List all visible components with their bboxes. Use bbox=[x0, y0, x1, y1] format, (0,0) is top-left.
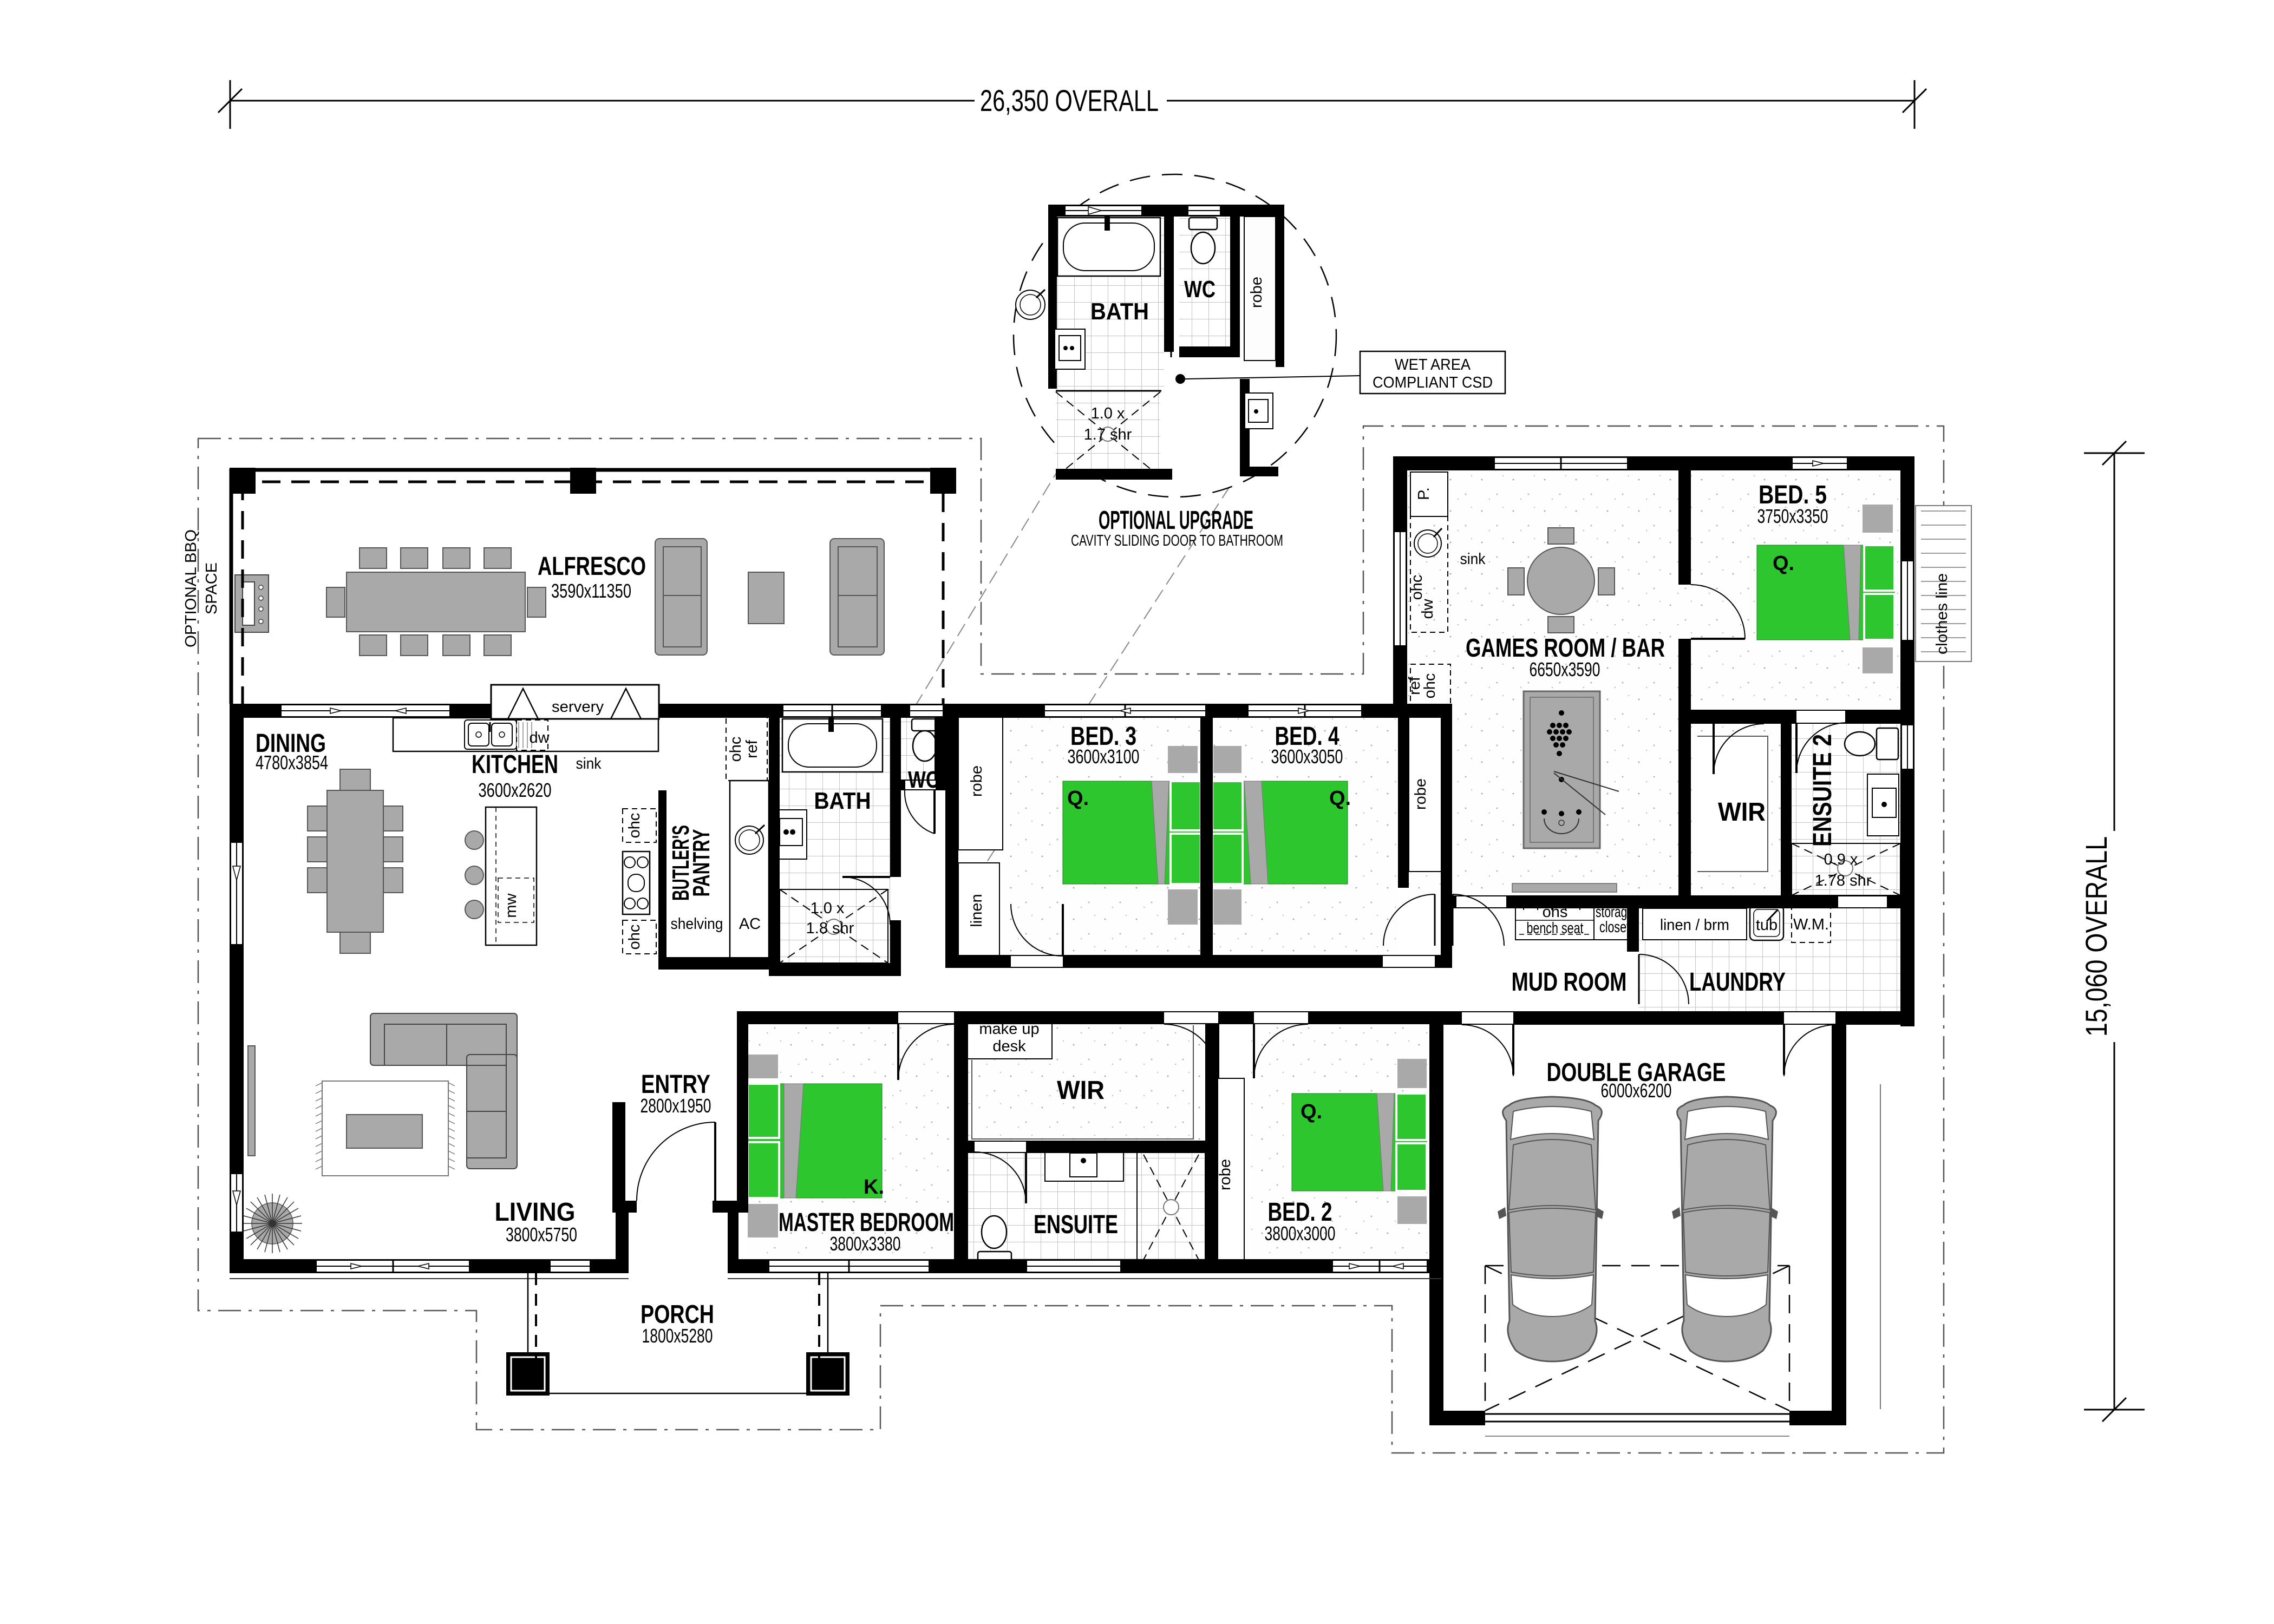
svg-text:dw: dw bbox=[1419, 598, 1436, 619]
svg-text:desk: desk bbox=[992, 1038, 1026, 1055]
svg-text:ref: ref bbox=[743, 739, 761, 758]
svg-text:bench seat: bench seat bbox=[1527, 920, 1584, 937]
svg-text:1800x5280: 1800x5280 bbox=[642, 1325, 713, 1347]
svg-text:LAUNDRY: LAUNDRY bbox=[1689, 968, 1786, 997]
svg-text:MUD ROOM: MUD ROOM bbox=[1512, 968, 1627, 997]
svg-text:1.7 shr: 1.7 shr bbox=[1084, 426, 1132, 443]
svg-text:WC: WC bbox=[908, 767, 939, 793]
svg-text:3600x3050: 3600x3050 bbox=[1271, 745, 1343, 768]
svg-text:26,350 OVERALL: 26,350 OVERALL bbox=[980, 83, 1159, 117]
svg-text:1.0 x: 1.0 x bbox=[1091, 405, 1125, 422]
svg-text:WIR: WIR bbox=[1057, 1076, 1105, 1105]
svg-text:robe: robe bbox=[1217, 1159, 1234, 1190]
svg-text:4780x3854: 4780x3854 bbox=[256, 751, 328, 774]
svg-text:OPTIONAL BBQ: OPTIONAL BBQ bbox=[182, 529, 200, 647]
svg-text:1.78 shr: 1.78 shr bbox=[1815, 872, 1872, 889]
svg-text:BATH: BATH bbox=[1090, 298, 1149, 325]
svg-text:3800x3380: 3800x3380 bbox=[830, 1233, 901, 1255]
svg-text:BATH: BATH bbox=[814, 788, 871, 814]
svg-text:ALFRESCO: ALFRESCO bbox=[538, 552, 646, 581]
svg-text:robe: robe bbox=[968, 765, 985, 797]
svg-text:3800x5750: 3800x5750 bbox=[506, 1223, 577, 1246]
svg-text:CAVITY SLIDING DOOR TO BATHROO: CAVITY SLIDING DOOR TO BATHROOM bbox=[1071, 532, 1283, 549]
svg-text:W.M.: W.M. bbox=[1793, 916, 1829, 933]
svg-text:K.: K. bbox=[864, 1176, 884, 1199]
svg-text:ohc: ohc bbox=[1421, 673, 1439, 699]
svg-text:1.8 shr: 1.8 shr bbox=[806, 920, 854, 937]
svg-text:6650x3590: 6650x3590 bbox=[1530, 658, 1600, 680]
svg-text:Q.: Q. bbox=[1773, 552, 1794, 575]
svg-text:LIVING: LIVING bbox=[495, 1198, 576, 1227]
svg-text:ENSUITE: ENSUITE bbox=[1034, 1210, 1118, 1239]
svg-text:3600x2620: 3600x2620 bbox=[479, 779, 552, 801]
svg-text:ohc: ohc bbox=[1408, 575, 1426, 600]
svg-text:3590x11350: 3590x11350 bbox=[551, 580, 631, 602]
svg-text:sink: sink bbox=[1460, 551, 1486, 568]
svg-text:SPACE: SPACE bbox=[203, 562, 220, 614]
svg-text:P.: P. bbox=[1415, 487, 1433, 500]
svg-text:Q.: Q. bbox=[1067, 787, 1089, 810]
svg-text:15,060 OVERALL: 15,060 OVERALL bbox=[2079, 836, 2113, 1037]
svg-text:1.0 x: 1.0 x bbox=[811, 900, 845, 917]
svg-text:3800x3000: 3800x3000 bbox=[1265, 1222, 1336, 1245]
svg-text:closet: closet bbox=[1599, 919, 1630, 936]
svg-text:robe: robe bbox=[1412, 778, 1429, 810]
svg-text:2800x1950: 2800x1950 bbox=[641, 1095, 711, 1117]
svg-text:mw: mw bbox=[502, 893, 520, 918]
svg-text:shelving: shelving bbox=[671, 915, 723, 933]
svg-text:linen / brm: linen / brm bbox=[1660, 916, 1729, 934]
svg-text:servery: servery bbox=[552, 698, 604, 716]
svg-text:KITCHEN: KITCHEN bbox=[472, 750, 558, 779]
svg-text:ENSUITE 2: ENSUITE 2 bbox=[1808, 734, 1837, 847]
svg-text:ohc: ohc bbox=[626, 925, 643, 950]
svg-text:6000x6200: 6000x6200 bbox=[1601, 1079, 1672, 1102]
svg-text:WIR: WIR bbox=[1718, 798, 1766, 827]
svg-text:3600x3100: 3600x3100 bbox=[1068, 745, 1140, 768]
svg-text:ohc: ohc bbox=[727, 737, 744, 762]
svg-text:tub: tub bbox=[1756, 916, 1778, 934]
svg-text:OPTIONAL UPGRADE: OPTIONAL UPGRADE bbox=[1099, 506, 1253, 535]
svg-text:clothes line: clothes line bbox=[1933, 573, 1951, 654]
svg-text:dw: dw bbox=[529, 729, 550, 746]
svg-text:robe: robe bbox=[1248, 277, 1265, 308]
svg-text:Q.: Q. bbox=[1329, 787, 1351, 810]
svg-text:PANTRY: PANTRY bbox=[688, 829, 715, 897]
svg-text:COMPLIANT CSD: COMPLIANT CSD bbox=[1373, 374, 1493, 391]
svg-text:WET AREA: WET AREA bbox=[1395, 356, 1471, 374]
svg-text:Q.: Q. bbox=[1301, 1101, 1322, 1123]
svg-text:0.9 x: 0.9 x bbox=[1824, 851, 1858, 868]
svg-text:ohc: ohc bbox=[626, 813, 643, 839]
svg-text:WC: WC bbox=[1184, 276, 1216, 303]
svg-text:3750x3350: 3750x3350 bbox=[1757, 505, 1828, 527]
svg-text:AC: AC bbox=[739, 915, 761, 933]
svg-text:linen: linen bbox=[968, 894, 985, 927]
svg-text:sink: sink bbox=[576, 755, 602, 772]
